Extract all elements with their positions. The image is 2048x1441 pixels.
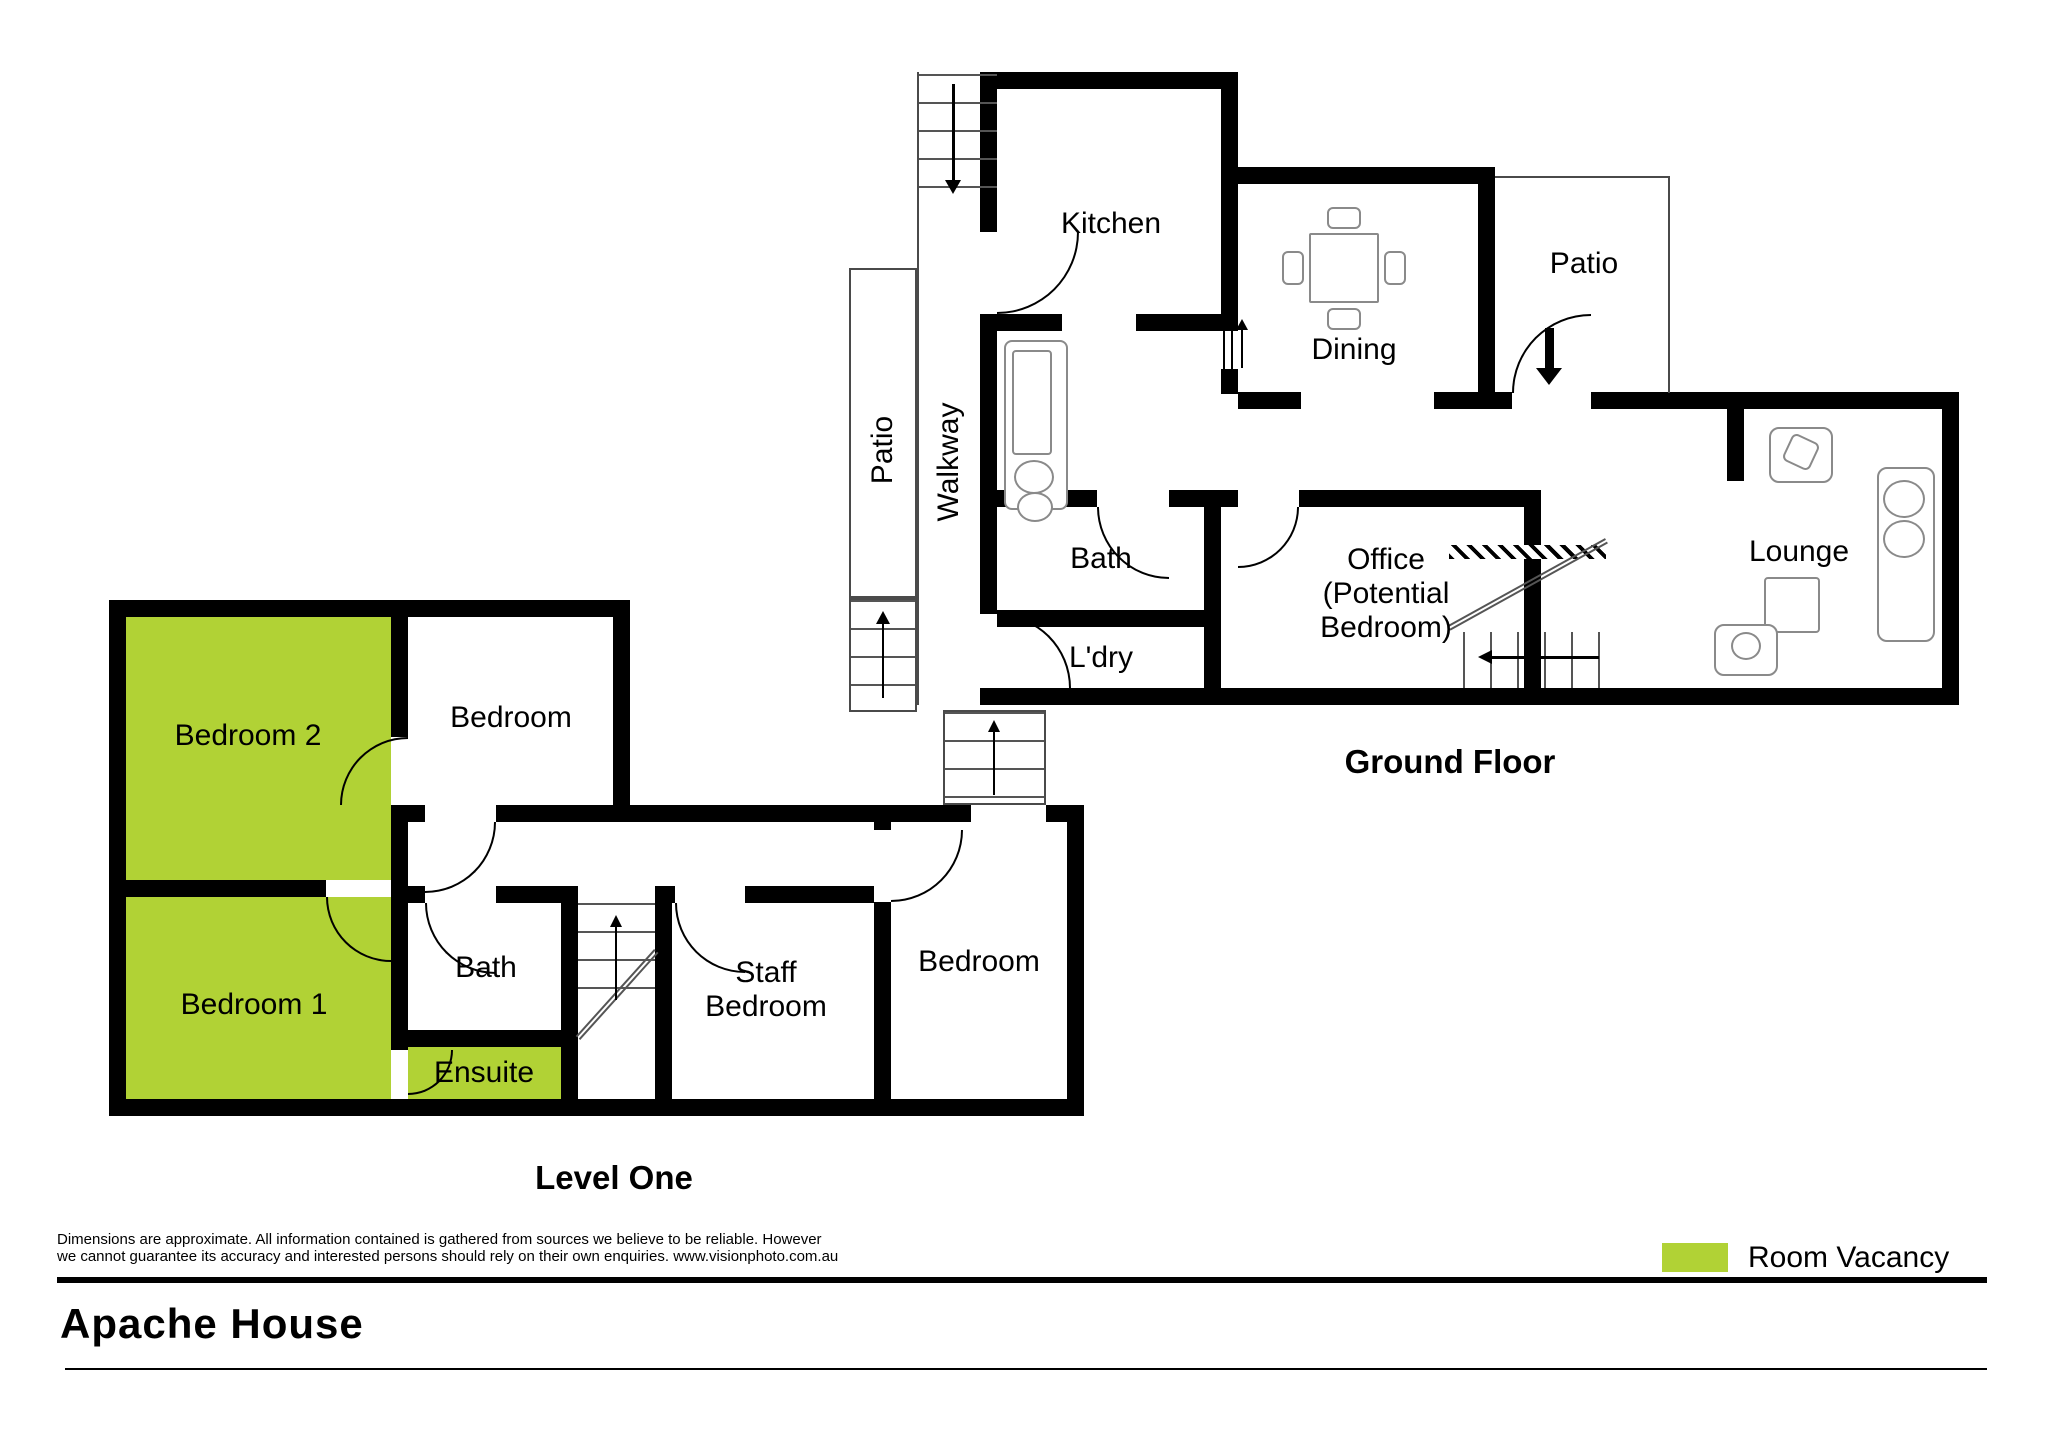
wall [109,1099,1084,1116]
sofa-cushion [1883,480,1925,518]
sofa-cushion [1883,520,1925,558]
room-label-walkway: Walkway [932,403,966,522]
wall [496,805,613,822]
door-arc [891,830,963,902]
ground-floor-title: Ground Floor [1345,743,1556,781]
room-label-office: Office (Potential Bedroom) [1320,543,1452,645]
wall [109,880,326,897]
wall [561,903,578,1099]
patio-upper-edge [1668,176,1670,393]
wall [997,314,1062,331]
wall [408,805,425,822]
disclaimer-line-1: Dimensions are approximate. All informat… [57,1231,838,1248]
door-arc [1238,507,1299,568]
room-label-bedroom-right: Bedroom [918,945,1040,979]
wall [109,600,630,617]
armchair-cushion [1731,632,1761,660]
wall [496,886,578,903]
wall [1221,184,1238,314]
patio-upper-edge [1495,176,1669,178]
chair [1327,207,1361,229]
stairs-up-arrow-icon [615,922,617,1000]
wall [874,902,891,1116]
wall [1204,507,1221,688]
wall [1478,184,1495,392]
room-label-kitchen: Kitchen [1061,207,1161,241]
wall [613,600,630,805]
chair [1282,251,1304,285]
wall [1942,409,1959,688]
wall [1221,167,1495,184]
sofa-cushion [1017,492,1053,522]
legend-vacancy-swatch [1662,1243,1728,1272]
wall [980,688,1959,705]
door-arc [425,822,496,893]
wall [391,805,408,880]
wall [1067,805,1084,1116]
room-label-bedroom2: Bedroom 2 [175,719,322,753]
wall [109,600,126,1116]
wall [1221,369,1238,394]
wall [745,886,874,903]
window-arrow-icon [1241,326,1243,368]
stairs-down-arrow-icon [952,84,955,182]
wall [1299,490,1541,507]
wall [1727,409,1744,481]
entry-arrow-head-icon [1536,368,1562,388]
sofa-seat [1012,350,1052,455]
window-arrow-head-icon [1236,316,1248,330]
sofa-cushion [1014,460,1054,494]
room-label-bath: Bath [455,951,517,985]
floorplan-sheet: Kitchen Dining Patio Patio Walkway Bath … [0,0,2048,1441]
stairs-left-arrow-head-icon [1475,650,1492,664]
room-label-patio-side: Patio [866,416,900,484]
room-label-bedroom1: Bedroom 1 [181,988,328,1022]
wall [980,314,997,614]
chair [1384,251,1406,285]
room-label-bath: Bath [1070,542,1132,576]
wall [391,880,408,897]
wall [655,886,675,903]
wall [408,886,425,903]
stairs-left-arrow-icon [1489,656,1599,659]
wall [655,886,672,1116]
divider-thick [57,1277,1987,1283]
room-label-bedroom-top: Bedroom [450,701,572,735]
chair [1327,308,1361,330]
stairs-up-arrow-icon [993,725,995,795]
wall [613,805,971,822]
wall [408,1030,578,1047]
page-title: Apache House [60,1300,364,1348]
wall [874,822,891,830]
wall [391,617,408,737]
legend-vacancy-label: Room Vacancy [1748,1243,1949,1272]
room-label-ensuite: Ensuite [434,1056,534,1090]
wall [1238,392,1301,409]
wall [1434,392,1512,409]
window-marker [1223,314,1233,372]
dining-table [1309,233,1379,303]
wall [980,72,1238,89]
room-label-staff-bedroom: Staff Bedroom [705,956,827,1024]
room-label-patio-upper: Patio [1550,247,1618,281]
divider-thin [65,1368,1987,1370]
wall [391,897,408,1050]
stairs-up-arrow-head-icon [610,912,622,927]
level-one-plan: Bedroom 2 Bedroom Bedroom 1 Bath Ensuite… [91,590,1111,1250]
room-label-lounge: Lounge [1749,535,1849,569]
level-one-title: Level One [535,1159,693,1197]
room-label-dining: Dining [1311,333,1396,367]
door-arc [997,232,1079,314]
wall [1591,392,1959,409]
stairs-up-arrow-head-icon [988,717,1000,732]
entry-arrow-icon [1545,328,1554,370]
wall [1169,490,1238,507]
stairs-down-arrow-head-icon [945,180,961,197]
disclaimer-line-2: we cannot guarantee its accuracy and int… [57,1248,838,1265]
disclaimer-text: Dimensions are approximate. All informat… [57,1231,838,1265]
